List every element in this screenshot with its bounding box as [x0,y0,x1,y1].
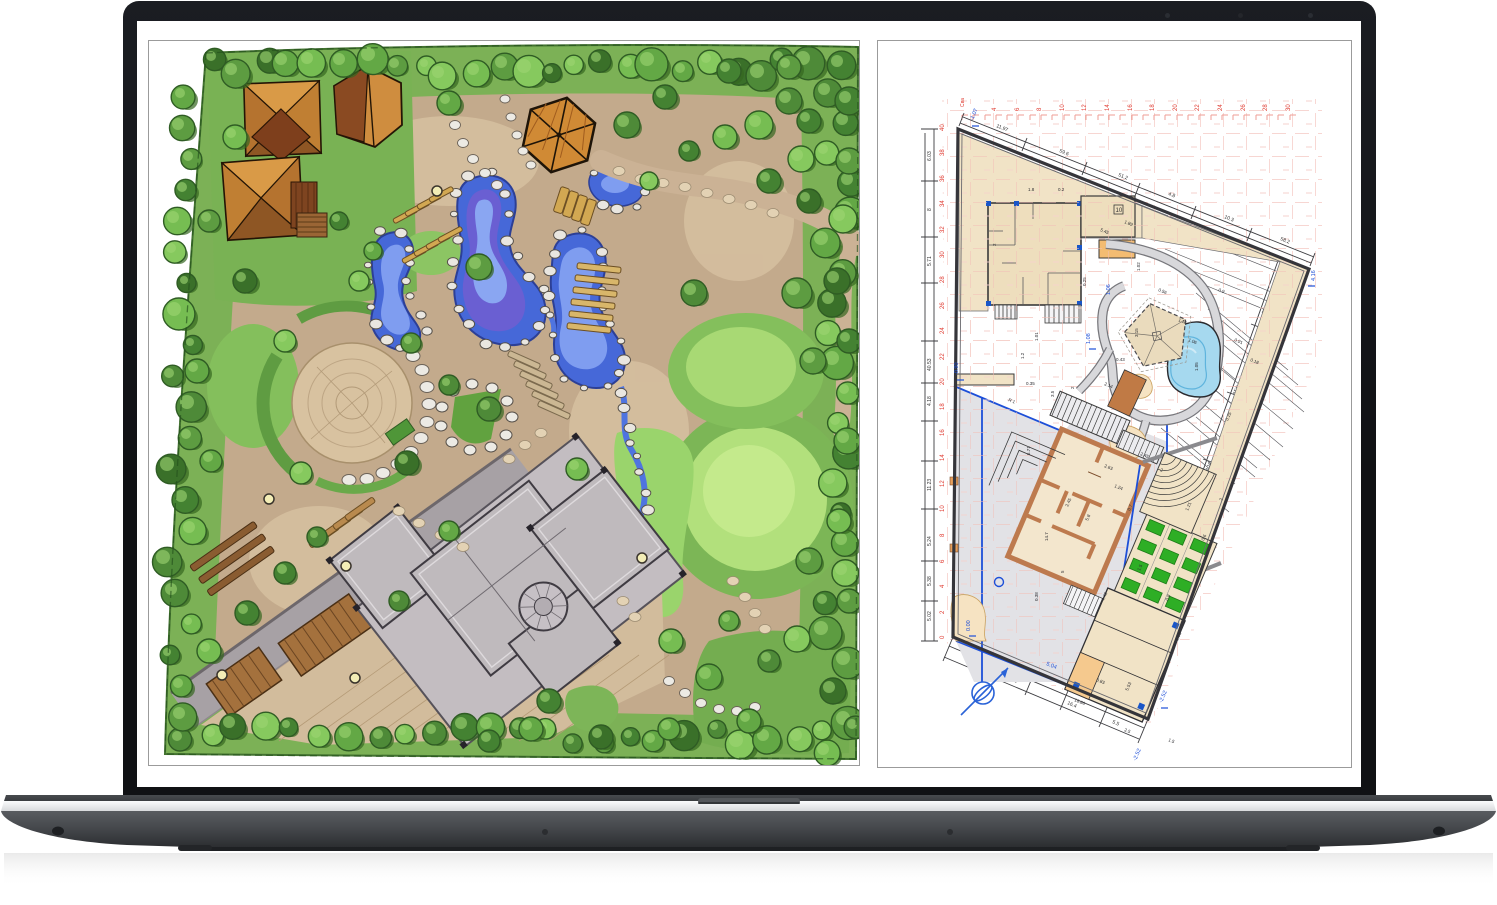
svg-text:10: 10 [940,505,946,512]
svg-text:0.35: 0.35 [1026,381,1035,386]
svg-text:1.02: 1.02 [1136,262,1141,271]
svg-text:3.5: 3.5 [1050,390,1055,397]
svg-text:20: 20 [940,378,946,385]
svg-text:36: 36 [940,175,946,182]
svg-text:12: 12 [940,480,946,487]
svg-text:8: 8 [940,533,946,537]
svg-text:0.2: 0.2 [1058,187,1065,192]
svg-text:6.03: 6.03 [927,151,933,161]
svg-text:Сва: Сва [960,98,966,107]
svg-text:40: 40 [940,124,946,131]
svg-text:11.23: 11.23 [927,479,933,491]
svg-text:12: 12 [1082,104,1088,111]
svg-text:6: 6 [940,559,946,563]
svg-text:18: 18 [1150,104,1156,111]
svg-text:38: 38 [940,149,946,156]
svg-text:24: 24 [1218,104,1224,111]
svg-text:1.01: 1.01 [1034,332,1039,341]
svg-text:28: 28 [1263,104,1269,111]
svg-text:14: 14 [940,454,946,461]
svg-text:0.25: 0.25 [1082,277,1087,286]
svg-text:4.16: 4.16 [1311,270,1317,281]
svg-text:20: 20 [1173,104,1179,111]
svg-text:10: 10 [1060,104,1066,111]
svg-text:28: 28 [940,276,946,283]
svg-text:26: 26 [1241,104,1247,111]
svg-text:4: 4 [940,584,946,588]
svg-text:-2.52: -2.52 [1132,748,1142,762]
svg-text:4.18: 4.18 [927,396,933,406]
svg-text:1.5: 1.5 [1168,737,1176,744]
svg-text:34: 34 [940,200,946,207]
svg-text:14.7: 14.7 [1044,532,1049,541]
svg-text:5.71: 5.71 [1026,446,1031,455]
svg-text:5.02: 5.02 [927,611,933,621]
svg-text:5.38: 5.38 [927,576,933,586]
svg-text:1.8: 1.8 [1028,187,1035,192]
svg-text:-0.90: -0.90 [954,362,960,375]
svg-text:30: 30 [940,251,946,258]
svg-text:0: 0 [940,635,946,639]
svg-text:0.43: 0.43 [1116,357,1125,362]
svg-text:5.24: 5.24 [927,536,933,546]
svg-text:16: 16 [1128,104,1134,111]
svg-text:1.05: 1.05 [1194,362,1199,371]
svg-text:0.00: 0.00 [966,620,972,631]
svg-text:32: 32 [940,226,946,233]
svg-text:26: 26 [940,302,946,309]
svg-text:30: 30 [1286,104,1292,111]
svg-text:14: 14 [1105,104,1111,111]
svg-text:18: 18 [940,403,946,410]
svg-text:0.38: 0.38 [1034,592,1039,601]
svg-text:1.2: 1.2 [1020,352,1025,359]
svg-text:40.53: 40.53 [927,358,933,371]
svg-text:5.71: 5.71 [927,256,933,266]
svg-text:2: 2 [940,610,946,614]
svg-text:1.08: 1.08 [1086,333,1092,344]
svg-text:5.5: 5.5 [1111,719,1120,727]
svg-text:24: 24 [940,327,946,334]
svg-text:1.06: 1.06 [1106,284,1112,295]
svg-text:8: 8 [927,208,933,211]
svg-text:22: 22 [1195,104,1201,111]
svg-text:3.15: 3.15 [1134,328,1139,337]
svg-text:22: 22 [940,353,946,360]
svg-text:16: 16 [940,429,946,436]
